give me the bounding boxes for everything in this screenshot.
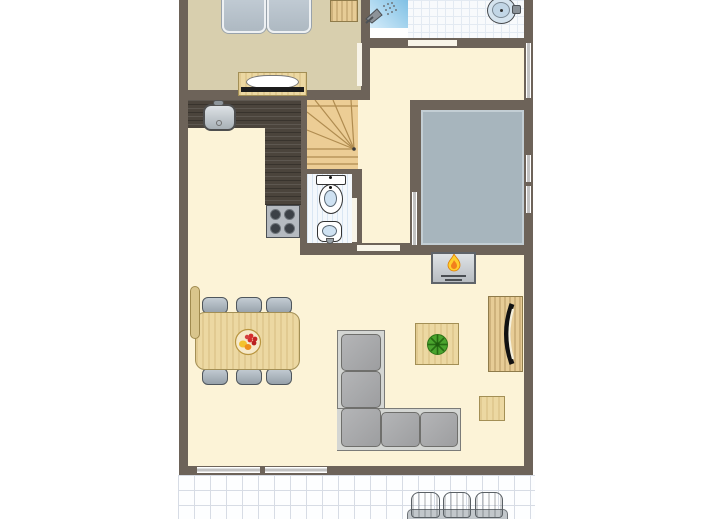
burner — [284, 223, 295, 234]
tv-icon — [488, 296, 523, 372]
dining-chair — [202, 368, 228, 385]
stairs — [307, 100, 358, 170]
door-living — [357, 245, 400, 251]
door-bedroom — [357, 43, 362, 86]
bed-duvet-left — [222, 0, 266, 33]
toilet-seat-dot — [329, 186, 332, 189]
kitchen-sink-drain — [216, 120, 222, 126]
wardrobe — [330, 0, 358, 22]
garden-chair — [411, 492, 440, 518]
dining-chair — [266, 368, 292, 385]
sofa-cushion — [341, 408, 381, 447]
door-bathroom — [408, 40, 457, 46]
fireplace-vent-line — [441, 275, 466, 277]
toilet-cistern-button — [329, 176, 332, 179]
door-wc — [352, 198, 357, 242]
washbasin-drain — [500, 9, 503, 12]
sofa-cushion — [420, 412, 458, 447]
floor-plan: floor-plan — [0, 0, 713, 519]
wall-stairs-west — [300, 100, 307, 255]
window-living-south-1 — [197, 467, 260, 473]
kitchen-counter-side — [265, 128, 301, 205]
sofa-cushion — [341, 334, 381, 371]
side-table — [479, 396, 505, 421]
dresser-bar — [241, 87, 304, 92]
kitchen-faucet — [213, 100, 224, 106]
patio — [421, 110, 524, 245]
shower-tray-edge — [370, 28, 408, 38]
plant-icon — [426, 333, 449, 356]
kitchen-sink — [203, 104, 236, 131]
window-patio-west — [412, 192, 417, 245]
washbasin-tap — [512, 5, 521, 14]
window-living-south-2 — [265, 467, 327, 473]
burner — [270, 223, 281, 234]
radiator — [190, 286, 200, 339]
wall-left — [179, 0, 188, 475]
dining-chair — [236, 368, 262, 385]
wall-patio-north — [410, 100, 533, 110]
hand-basin-inner — [322, 225, 337, 237]
sofa-cushion — [341, 371, 381, 408]
fireplace-vent-line — [445, 279, 462, 281]
flame-icon — [446, 254, 462, 272]
window-hall-east — [526, 43, 531, 98]
garden-chair — [443, 492, 471, 518]
sofa-cushion — [381, 412, 420, 447]
fruit-bowl-icon — [234, 328, 262, 356]
toilet-bowl-inner — [324, 190, 337, 207]
bed-duvet-right — [267, 0, 311, 33]
window-patio-east-1 — [526, 155, 531, 182]
garden-chair — [475, 492, 503, 518]
hob — [266, 205, 300, 238]
window-patio-east-2 — [526, 186, 531, 213]
burner — [270, 209, 281, 220]
burner — [284, 209, 295, 220]
shower-icon — [365, 2, 403, 24]
